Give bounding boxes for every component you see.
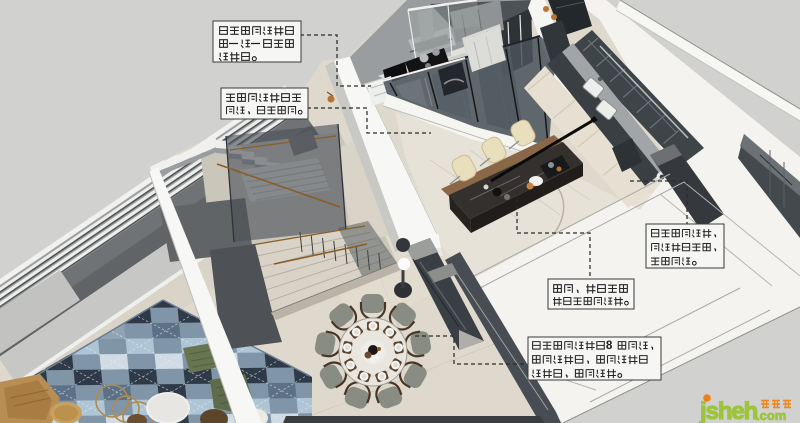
svg-text:8: 8: [606, 339, 613, 352]
svg-text:.com: .com: [756, 408, 786, 423]
svg-text:jsheh: jsheh: [699, 398, 758, 423]
